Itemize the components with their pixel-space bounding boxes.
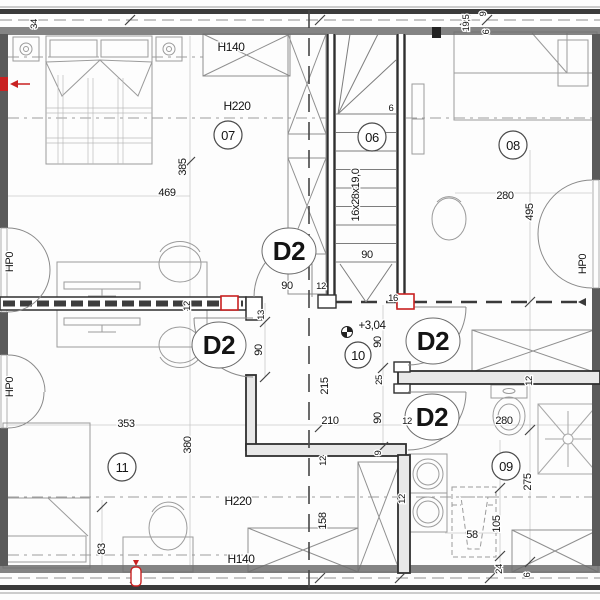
- dim-280-bath: 280: [495, 415, 512, 427]
- dim-90-closet: 90: [372, 336, 384, 348]
- height-label-h140-top: H140: [217, 40, 245, 54]
- monitor: [64, 318, 140, 325]
- right-wall: [592, 34, 600, 180]
- red-marker-midwall: [221, 296, 238, 310]
- dim-6-top: 6: [481, 29, 492, 34]
- dim-12-midwall: 12: [182, 301, 193, 311]
- toilet: [491, 385, 527, 435]
- monitor: [64, 282, 140, 289]
- dim-275: 275: [522, 473, 534, 490]
- blanket-fold: [100, 60, 152, 96]
- doors: [8, 180, 592, 450]
- room-number-08: 08: [506, 138, 520, 153]
- chair: [159, 246, 201, 282]
- door-jamb: [394, 362, 410, 372]
- dim-210: 210: [321, 415, 338, 427]
- chair: [432, 198, 466, 240]
- door-label: D2: [203, 330, 235, 360]
- pillow: [50, 40, 97, 57]
- height-label-h220-top: H220: [223, 99, 251, 113]
- left-wall: [0, 428, 8, 566]
- pillow: [7, 536, 86, 562]
- sink: [452, 487, 496, 557]
- lamp-icon: [163, 43, 175, 55]
- stair-wall-foot: [318, 295, 336, 308]
- parapet-hp0-right: HP0: [577, 254, 589, 274]
- dim-353: 353: [117, 418, 134, 430]
- dim-19-5: 19,5: [461, 14, 472, 31]
- dim-90-door11: 90: [253, 344, 265, 356]
- dim-385: 385: [177, 158, 189, 175]
- top-outer-wall: [0, 9, 600, 14]
- dim-90-stairs: 90: [361, 249, 373, 261]
- bottom-inner-wall: [0, 565, 600, 573]
- dim-16: 16: [388, 293, 398, 304]
- chimney: [432, 27, 441, 38]
- wardrobe-h140-top: [203, 34, 290, 76]
- dim-158: 158: [317, 512, 329, 529]
- washing-machines: [409, 454, 447, 532]
- attic-line-arrow: [578, 298, 586, 306]
- room-number-06: 06: [365, 130, 379, 145]
- dim-12-bathwall: 12: [397, 494, 408, 504]
- single-bed: [454, 32, 597, 120]
- wardrobe-closet: [472, 330, 594, 372]
- parapet-hp0-left-top: HP0: [4, 252, 16, 272]
- blanket-fold: [48, 498, 88, 536]
- bottom-outer-wall: [0, 585, 600, 590]
- chair: [149, 506, 187, 550]
- shower: [538, 404, 598, 474]
- dim-12-nook: 12: [318, 456, 329, 466]
- blanket-fold: [532, 33, 567, 73]
- door-label: D2: [273, 236, 305, 266]
- top-inner-wall: [0, 27, 600, 35]
- dim-280-top: 280: [496, 190, 513, 202]
- blanket-fold: [46, 60, 100, 96]
- room-number-10: 10: [351, 348, 365, 363]
- door-label: D2: [417, 326, 449, 356]
- dim-469: 469: [158, 187, 175, 199]
- desk: [57, 310, 207, 347]
- dim-12-closetwall: 12: [524, 376, 535, 386]
- dim-90-bathdoor: 90: [372, 412, 384, 424]
- dim-24: 24: [494, 564, 505, 574]
- pillow: [558, 40, 588, 86]
- dim-12-bathdoor: 12: [402, 416, 412, 427]
- red-arrow-left: [10, 80, 18, 88]
- desk: [57, 262, 207, 299]
- lamp-icon: [20, 43, 32, 55]
- dim-495: 495: [524, 203, 536, 220]
- level-value: +3,04: [358, 320, 386, 332]
- floor-plan-canvas: 07 06 08 10 11 09 D2 D2 D2 D2 H140 H220 …: [0, 0, 600, 600]
- wardrobe-nook: [358, 462, 400, 572]
- red-marker-left: [0, 77, 8, 91]
- dim-83: 83: [96, 543, 108, 555]
- direction-arrow: [340, 264, 366, 302]
- height-label-h140-bottom: H140: [227, 552, 255, 566]
- dim-380: 380: [182, 436, 194, 453]
- room-number-11: 11: [116, 460, 129, 475]
- door-jamb: [394, 384, 410, 393]
- dim-6-bottom: 6: [522, 572, 533, 577]
- dim-12-door07: 12: [316, 281, 326, 292]
- dim-215: 215: [319, 377, 331, 394]
- bath-wall: [398, 455, 410, 573]
- dim-90-door07: 90: [281, 280, 293, 292]
- room-number-07: 07: [221, 128, 235, 143]
- height-label-h220-bottom: H220: [224, 494, 252, 508]
- right-wall: [592, 288, 600, 566]
- room11-furniture: [3, 310, 207, 572]
- stair-count: 6: [389, 103, 394, 114]
- dim-58: 58: [466, 529, 478, 541]
- single-bed: [3, 423, 90, 568]
- left-wall: [0, 34, 8, 228]
- red-marker-bottom: [131, 567, 141, 586]
- dim-34: 34: [29, 19, 40, 29]
- winder-step: [338, 60, 396, 114]
- parapet-hp0-left-bottom: HP0: [4, 377, 16, 397]
- red-marker-stairwall: [397, 294, 414, 309]
- dim-105: 105: [491, 515, 503, 532]
- door-label: D2: [416, 402, 448, 432]
- pillow: [101, 40, 148, 57]
- double-bed: [46, 36, 152, 164]
- dim-13: 13: [256, 310, 267, 320]
- floor-plan-drawing: 07 06 08 10 11 09 D2 D2 D2 D2 H140 H220 …: [0, 0, 600, 600]
- dim-9-nook: 9: [373, 450, 384, 455]
- stair-treads: [336, 34, 396, 302]
- staircase: [318, 34, 406, 308]
- level-marker: [342, 327, 353, 338]
- dim-25: 25: [374, 375, 385, 385]
- hall-wall: [246, 375, 256, 450]
- dim-9-top: 9: [478, 11, 489, 16]
- window-frame: [593, 180, 599, 288]
- plaid-pattern: [46, 75, 152, 164]
- room-number-09: 09: [499, 459, 513, 474]
- closet-wall: [398, 371, 600, 384]
- stair-formula: 16x28x19,0: [350, 168, 362, 221]
- left-wall: [0, 312, 8, 355]
